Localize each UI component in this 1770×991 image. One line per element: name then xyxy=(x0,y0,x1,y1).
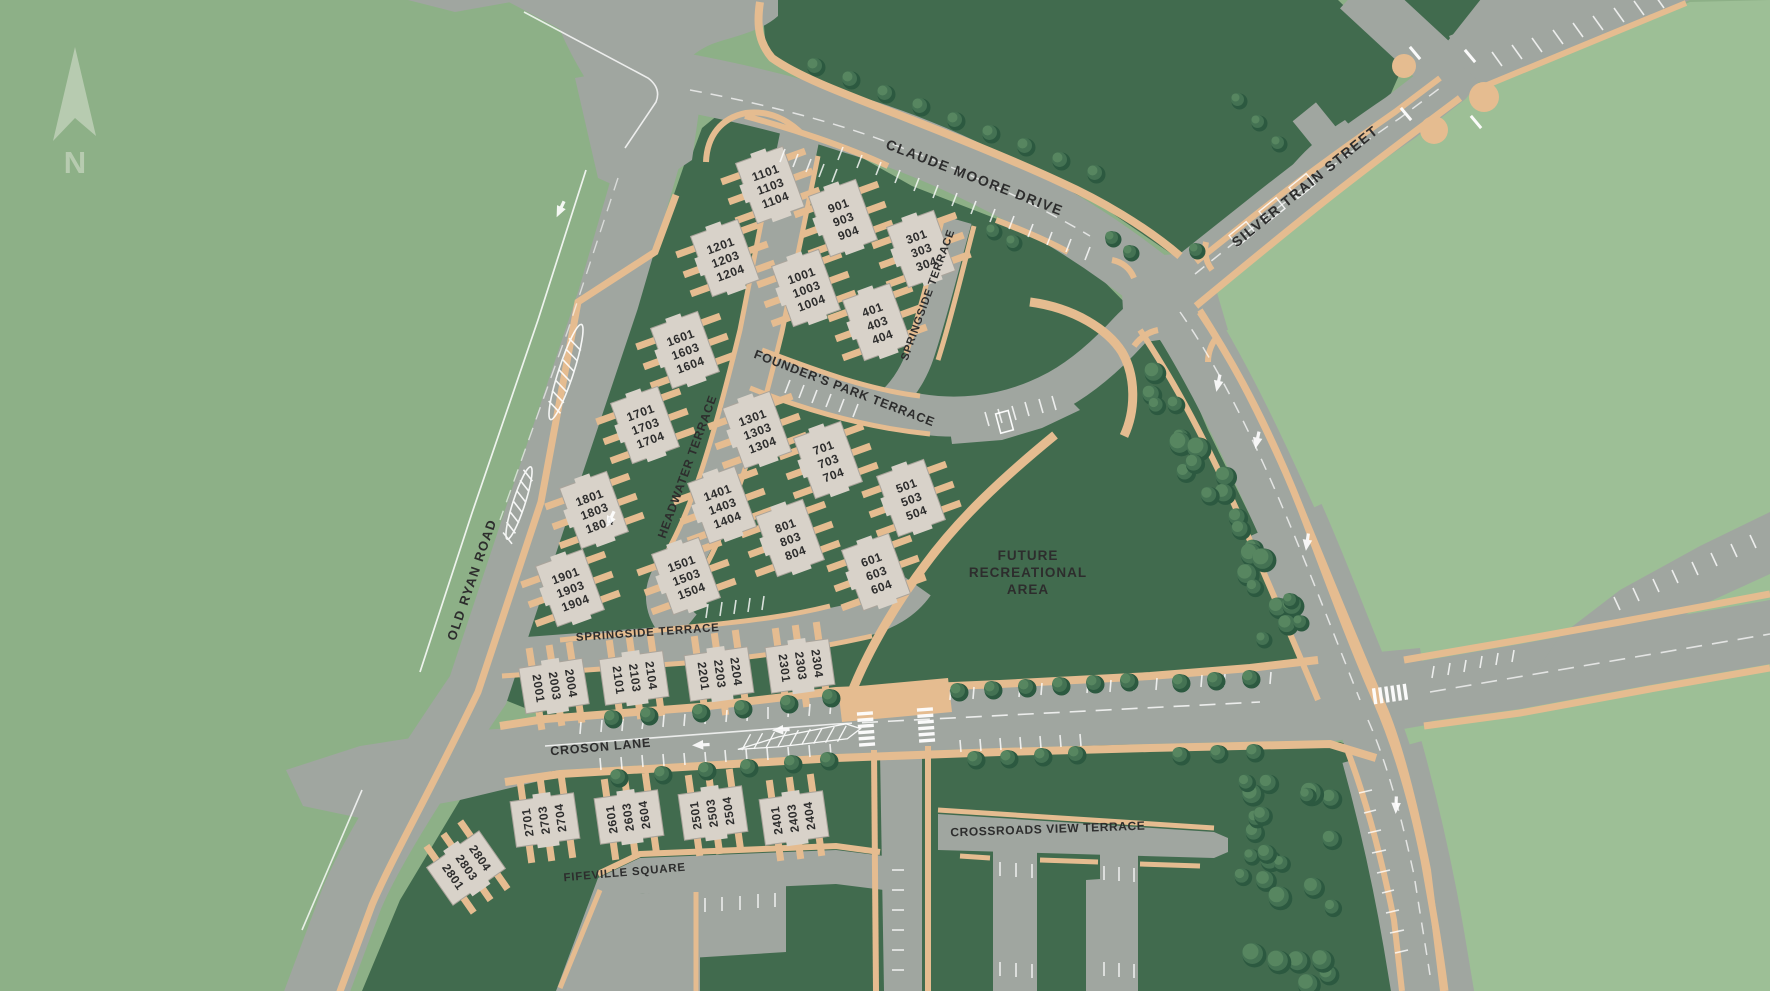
svg-text:FUTURE: FUTURE xyxy=(998,548,1059,563)
svg-text:RECREATIONAL: RECREATIONAL xyxy=(969,565,1087,580)
svg-text:N: N xyxy=(64,145,86,180)
svg-text:AREA: AREA xyxy=(1007,582,1049,597)
